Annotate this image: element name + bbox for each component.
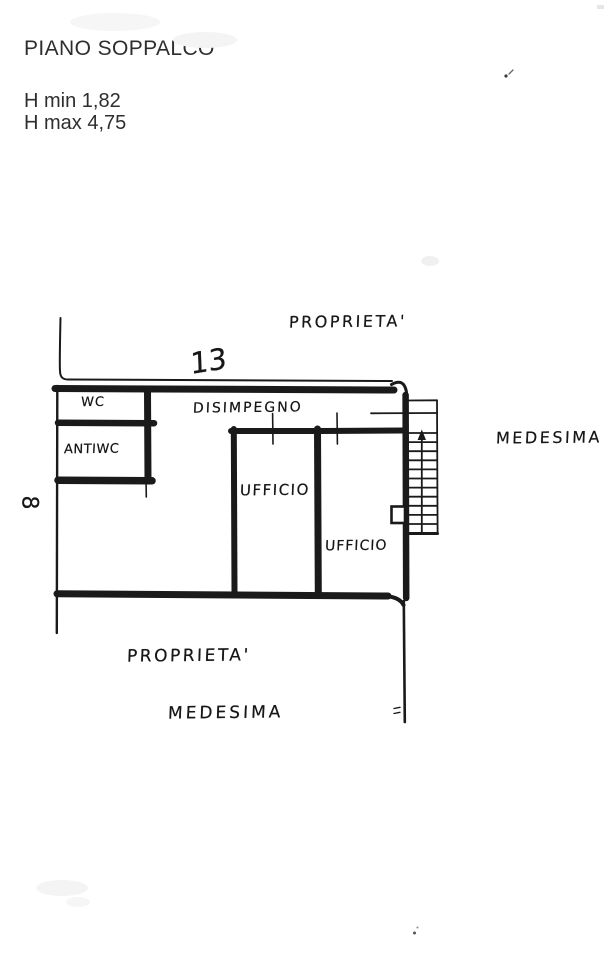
stair-door-jamb xyxy=(392,507,406,524)
room-label-antiwc: ANTIWC xyxy=(64,442,120,458)
room-label-disimpegno: DISIMPEGNO xyxy=(193,399,303,416)
room-label-wc: WC xyxy=(81,395,106,410)
stair-direction-up-arrow-icon xyxy=(418,430,426,441)
room-label-ufficio-1: UFFICIO xyxy=(240,481,311,500)
dimension-top-label: 13 xyxy=(190,341,228,381)
scanned-floor-plan-page: PIANO SOPPALCO H min 1,82 H max 4,75 xyxy=(0,0,610,976)
boundary-label-top: PROPRIETA' xyxy=(289,311,408,331)
office-partition-walls xyxy=(231,429,404,592)
boundary-label-right: MEDESIMA xyxy=(496,427,603,447)
boundary-label-bottom-2: MEDESIMA xyxy=(168,702,284,723)
boundary-label-bottom-1: PROPRIETA' xyxy=(127,645,252,666)
wc-partition-walls xyxy=(58,392,154,481)
dimension-left-label: 8 xyxy=(17,496,42,510)
room-label-ufficio-2: UFFICIO xyxy=(325,538,388,555)
scan-tick xyxy=(509,70,513,74)
